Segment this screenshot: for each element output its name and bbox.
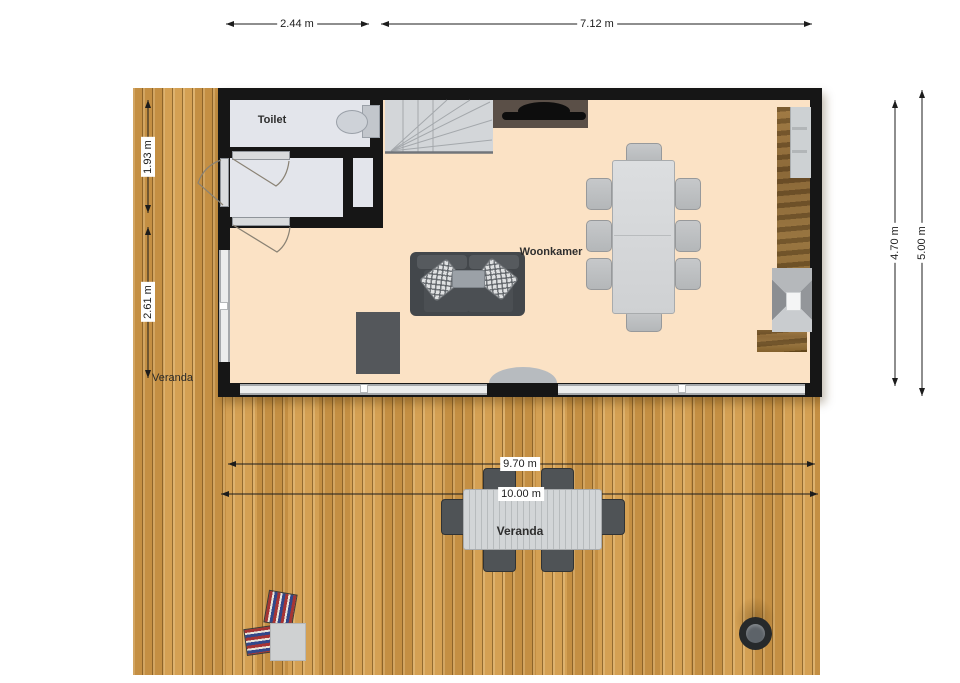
dim-right-inner: 4.70 m (888, 223, 902, 263)
veranda-main-label: Veranda (497, 524, 544, 538)
dining-chair (675, 220, 701, 252)
living-room-label: Woonkamer (520, 246, 583, 258)
rug (356, 312, 400, 374)
dim-left-lower: 2.61 m (141, 282, 155, 322)
dim-top-right: 7.12 m (577, 17, 617, 31)
tv-console (493, 100, 588, 128)
toilet-door-leaf (232, 151, 290, 160)
dining-chair (586, 178, 612, 210)
stove-hood-center (786, 292, 801, 311)
fire-pit-bowl (746, 624, 765, 643)
dim-veranda-outer: 10.00 m (498, 487, 544, 501)
dining-chair (586, 258, 612, 290)
bottom-wall-segment (487, 383, 558, 397)
dim-top-left: 2.44 m (277, 17, 317, 31)
dining-table (612, 160, 675, 314)
dim-left-upper: 1.93 m (141, 137, 155, 177)
side-table (270, 623, 306, 661)
kitchen-counter-end (757, 330, 807, 352)
toilet-label: Toilet (258, 114, 287, 126)
window-joint (219, 302, 228, 310)
coffee-tray (452, 270, 485, 288)
kitchen-appliance (790, 107, 811, 178)
dining-chair (675, 178, 701, 210)
window-joint (678, 384, 686, 393)
floor-plan-canvas: 2.44 m 7.12 m 1.93 m 2.61 m 4.70 m 5.00 … (0, 0, 960, 683)
front-door-leaf (220, 158, 229, 207)
dim-right-outer: 5.00 m (915, 223, 929, 263)
closet-floor (353, 158, 373, 207)
hall-door-leaf (232, 217, 290, 226)
appliance-detail (792, 150, 807, 153)
dining-chair (675, 258, 701, 290)
hallway-floor (230, 158, 343, 217)
dining-chair (586, 220, 612, 252)
toilet-fixture (336, 110, 368, 134)
window-joint (360, 384, 368, 393)
dim-veranda-inner: 9.70 m (500, 457, 540, 471)
staircase (385, 100, 493, 153)
deck-chair (263, 590, 297, 628)
veranda-side-label: Veranda (152, 372, 193, 384)
appliance-detail (792, 127, 807, 130)
outdoor-chair (598, 499, 625, 535)
dining-table-seam (614, 235, 671, 236)
